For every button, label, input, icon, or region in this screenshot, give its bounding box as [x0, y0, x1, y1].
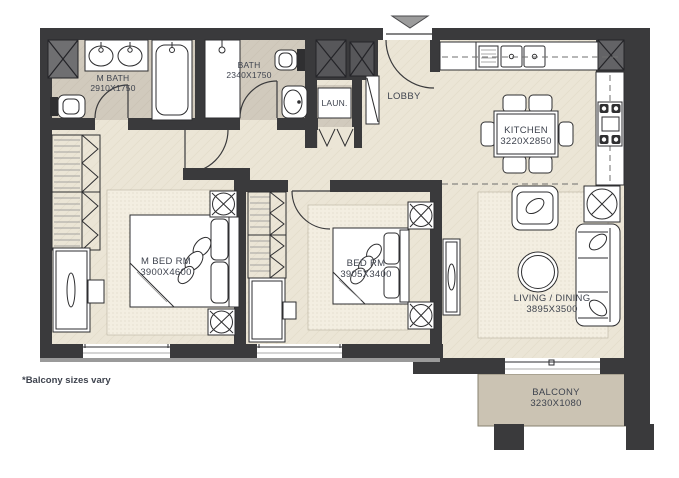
- label-living-dining-dims: 3895X3500: [526, 304, 577, 315]
- toilet-icon: [50, 95, 85, 118]
- wall-lobby-right: [430, 40, 440, 72]
- nightstand-icon: [408, 202, 434, 229]
- entry-arrow-icon: [392, 16, 428, 28]
- label-kitchen: KITCHEN: [504, 125, 548, 136]
- wall-right: [624, 28, 650, 374]
- wall-balcony-right: [624, 374, 650, 426]
- wall-bottom-a: [40, 344, 83, 358]
- stove-icon: [598, 102, 622, 146]
- label-master-bedroom: M BED RM: [141, 256, 191, 267]
- floor-plan: M BATH 2910X1750 BATH 2340X1750 LAUN. LO…: [0, 0, 679, 478]
- column-lobby-left: [316, 40, 346, 77]
- label-lobby: LOBBY: [387, 91, 421, 102]
- bathtub-icon: [152, 40, 192, 120]
- balcony-note: *Balcony sizes vary: [22, 375, 111, 386]
- sliding-door-icon: [505, 358, 600, 374]
- nightstand-icon: [208, 309, 235, 335]
- label-balcony: BALCONY: [532, 387, 580, 398]
- wall-bedroom-top-a: [246, 180, 288, 192]
- label-laundry: LAUN.: [321, 98, 347, 108]
- wall-living-bottom-right: [600, 358, 650, 374]
- kitchen-counter-top: [440, 42, 598, 70]
- column-lobby-right: [350, 42, 374, 76]
- wall-top-left: [40, 28, 383, 40]
- balcony-pillar-right: [626, 424, 654, 450]
- column-master-bath: [48, 40, 78, 78]
- coffee-table-icon: [518, 252, 558, 292]
- column-kitchen: [598, 40, 624, 70]
- window: [83, 344, 170, 358]
- hall-closet-icon: [366, 76, 379, 124]
- fan-coil-icon: [584, 186, 620, 222]
- bifold-doors-icon: [318, 127, 354, 148]
- label-master-bath: M BATH: [97, 73, 130, 83]
- label-balcony-dims: 3230X1080: [530, 398, 581, 409]
- window: [257, 344, 342, 358]
- label-master-bedroom-dims: 3900X4600: [140, 267, 191, 278]
- sofa-icon: [576, 224, 620, 326]
- label-master-bath-dims: 2910X1750: [90, 83, 135, 93]
- wall-living-bottom-left: [430, 358, 505, 374]
- laundry-room: [318, 88, 354, 148]
- wall-bedroom-top-b: [330, 180, 430, 192]
- label-bedroom-dims: 3905X3400: [340, 269, 391, 280]
- armchair-icon: [512, 186, 558, 230]
- double-vanity-icon: [85, 40, 148, 71]
- tv-console-icon: [443, 239, 460, 315]
- balcony-pillar-left: [494, 424, 524, 450]
- label-kitchen-dims: 3220X2850: [500, 136, 551, 147]
- nightstand-icon: [210, 191, 237, 217]
- bottom-wall-shadow: [40, 358, 440, 362]
- label-bath: BATH: [238, 60, 261, 70]
- pedestal-sink-icon: [282, 86, 307, 118]
- wall-mbath-shower: [195, 40, 205, 130]
- label-bedroom: BED RM: [347, 258, 386, 269]
- label-bath-dims: 2340X1750: [226, 70, 271, 80]
- nightstand-icon: [408, 302, 434, 329]
- wall-bath-row-a: [40, 118, 95, 130]
- label-living-dining: LIVING / DINING: [514, 293, 591, 304]
- toilet-icon: [275, 49, 305, 71]
